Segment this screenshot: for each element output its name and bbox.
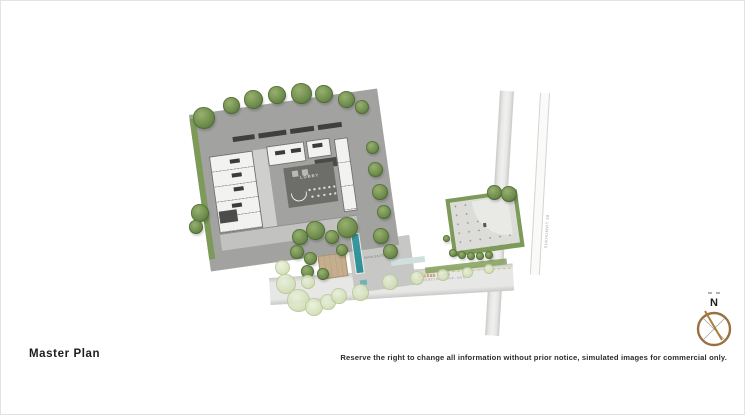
tree-icon xyxy=(290,245,304,259)
chair-icon xyxy=(311,195,314,198)
page-title: Master Plan xyxy=(29,348,100,360)
tree-icon xyxy=(304,252,317,265)
tree-icon xyxy=(377,205,391,219)
chair-icon xyxy=(329,193,332,196)
tree-icon xyxy=(337,217,358,238)
chair-icon xyxy=(318,187,321,190)
tree-icon xyxy=(501,186,517,202)
faded-tree-icon xyxy=(484,264,494,274)
faded-tree-icon xyxy=(301,275,315,289)
park-center-mark xyxy=(483,223,487,227)
tree-icon xyxy=(306,221,325,240)
room-block xyxy=(306,138,332,159)
main-plot: LOBBY xyxy=(189,89,399,272)
tree-icon xyxy=(244,90,263,109)
tree-icon xyxy=(368,162,383,177)
tree-icon xyxy=(355,100,369,114)
tree-icon xyxy=(325,230,339,244)
sofa-icon xyxy=(291,191,308,202)
tree-icon xyxy=(383,244,398,259)
faded-tree-icon xyxy=(352,284,369,301)
park-paving xyxy=(450,194,520,251)
tree-icon xyxy=(189,220,203,234)
chair-icon xyxy=(308,189,311,192)
utility-room xyxy=(219,209,238,223)
tree-icon xyxy=(372,184,388,200)
compass-icon: N xyxy=(694,290,736,350)
disclaimer-text: Reserve the right to change all informat… xyxy=(340,353,727,362)
faded-tree-icon xyxy=(275,260,290,275)
tree-icon xyxy=(467,252,475,260)
tree-icon xyxy=(366,141,379,154)
compass-north-label: N xyxy=(710,297,718,309)
tree-icon xyxy=(449,249,457,257)
tree-icon xyxy=(485,251,493,259)
faded-tree-icon xyxy=(331,288,347,304)
faded-tree-icon xyxy=(437,269,449,281)
chair-icon xyxy=(317,195,320,198)
faded-tree-icon xyxy=(410,271,424,285)
master-plan-canvas: SUKHUMVIT 39 ACCESS ROAD (FOR PROJECT EN… xyxy=(0,0,745,415)
side-road-label: SUKHUMVIT 39 xyxy=(544,214,551,248)
chair-icon xyxy=(334,192,337,195)
table-icon xyxy=(302,169,309,176)
tree-icon xyxy=(476,252,484,260)
tree-icon xyxy=(291,83,312,104)
lobby: LOBBY xyxy=(283,161,338,208)
tree-icon xyxy=(193,107,215,129)
chair-icon xyxy=(323,194,326,197)
faded-tree-icon xyxy=(462,267,473,278)
chair-icon xyxy=(323,187,326,190)
chair-icon xyxy=(333,185,336,188)
tree-icon xyxy=(373,228,389,244)
chair-icon xyxy=(313,188,316,191)
park-curve xyxy=(472,197,513,240)
tree-icon xyxy=(268,86,286,104)
tree-icon xyxy=(336,244,348,256)
chair-icon xyxy=(328,186,331,189)
tree-icon xyxy=(317,268,329,280)
tree-icon xyxy=(443,235,450,242)
tree-icon xyxy=(458,251,466,259)
table-icon xyxy=(292,170,299,177)
tree-icon xyxy=(487,185,502,200)
tree-icon xyxy=(315,85,333,103)
tree-icon xyxy=(338,91,355,108)
faded-tree-icon xyxy=(382,274,398,290)
tree-icon xyxy=(223,97,240,114)
